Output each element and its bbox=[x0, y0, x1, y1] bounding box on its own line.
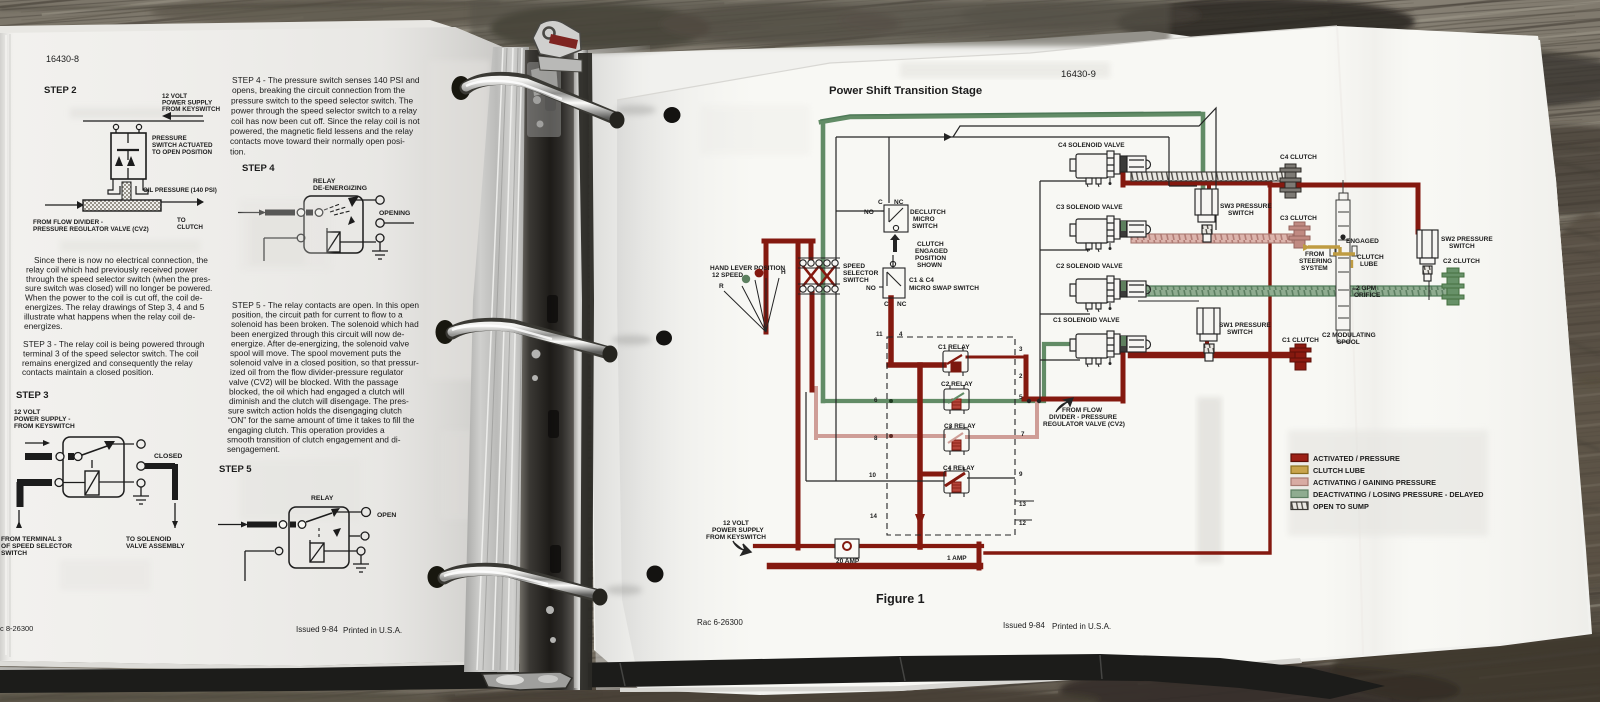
svg-text:1 AMP: 1 AMP bbox=[947, 555, 967, 562]
svg-text:STEERING: STEERING bbox=[1299, 258, 1332, 265]
svg-text:valve (CV2) will be blocked. W: valve (CV2) will be blocked. With the pa… bbox=[229, 377, 399, 387]
svg-text:2 GPM: 2 GPM bbox=[1356, 285, 1376, 292]
svg-text:DEACTIVATING / LOSING PRESSURE: DEACTIVATING / LOSING PRESSURE - DELAYED bbox=[1313, 490, 1484, 499]
svg-text:Issued 9-84: Issued 9-84 bbox=[1003, 621, 1045, 630]
svg-text:C3 SOLENOID VALVE: C3 SOLENOID VALVE bbox=[1056, 204, 1123, 211]
svg-text:FROM KEYSWITCH: FROM KEYSWITCH bbox=[706, 534, 766, 541]
svg-text:energize. After de-energizing,: energize. After de-energizing, the solen… bbox=[231, 338, 409, 348]
svg-text:4: 4 bbox=[899, 331, 903, 338]
svg-text:11: 11 bbox=[876, 331, 883, 338]
svg-text:FROM KEYSWITCH: FROM KEYSWITCH bbox=[14, 423, 75, 430]
svg-text:ENGAGED: ENGAGED bbox=[1346, 238, 1379, 245]
svg-text:20 AMP: 20 AMP bbox=[836, 558, 860, 565]
svg-text:5: 5 bbox=[1019, 394, 1023, 401]
svg-text:RELAY: RELAY bbox=[311, 495, 334, 502]
svg-text:Printed in U.S.A.: Printed in U.S.A. bbox=[1052, 622, 1111, 631]
svg-text:STEP 2: STEP 2 bbox=[44, 85, 77, 96]
svg-text:PRESSURE: PRESSURE bbox=[152, 135, 187, 142]
svg-text:FROM TERMINAL 3: FROM TERMINAL 3 bbox=[1, 536, 62, 543]
svg-text:position, the circuit path for: position, the circuit path for current t… bbox=[232, 310, 403, 320]
svg-text:SW1 PRESSURE: SW1 PRESSURE bbox=[1219, 322, 1271, 329]
svg-text:SHOWN: SHOWN bbox=[917, 262, 942, 269]
svg-text:SWITCH: SWITCH bbox=[1227, 329, 1253, 336]
svg-text:CLUTCH LUBE: CLUTCH LUBE bbox=[1313, 466, 1365, 475]
svg-text:CLUTCH: CLUTCH bbox=[917, 241, 944, 248]
svg-text:PRESSURE REGULATOR VALVE (CV2): PRESSURE REGULATOR VALVE (CV2) bbox=[33, 226, 149, 233]
svg-text:R: R bbox=[719, 283, 724, 290]
svg-text:3: 3 bbox=[1019, 346, 1023, 353]
svg-text:C: C bbox=[884, 301, 889, 308]
svg-text:engaging clutch. This operatio: engaging clutch. This operation provides… bbox=[228, 425, 385, 435]
svg-text:OPENING: OPENING bbox=[379, 210, 410, 217]
svg-text:been energized through this ci: been energized through this circuit will… bbox=[231, 329, 405, 339]
svg-text:pressure switch to the speed s: pressure switch to the speed selector sw… bbox=[231, 95, 413, 105]
svg-text:TO SOLENOID: TO SOLENOID bbox=[126, 536, 172, 543]
svg-text:12: 12 bbox=[1019, 520, 1026, 527]
svg-text:Issued 9-84: Issued 9-84 bbox=[296, 625, 338, 634]
svg-text:POWER SUPPLY: POWER SUPPLY bbox=[712, 527, 764, 534]
svg-text:STEP 5 - The relay contacts ar: STEP 5 - The relay contacts are open. In… bbox=[232, 300, 419, 310]
svg-text:C1 RELAY: C1 RELAY bbox=[938, 344, 970, 351]
svg-text:H: H bbox=[781, 269, 786, 276]
svg-text:C1 CLUTCH: C1 CLUTCH bbox=[1282, 337, 1319, 344]
svg-text:C4 CLUTCH: C4 CLUTCH bbox=[1280, 154, 1317, 161]
svg-text:12 VOLT: 12 VOLT bbox=[14, 409, 40, 416]
svg-text:C: C bbox=[878, 199, 883, 206]
svg-text:coil has now been cut off. Sin: coil has now been cut off. Since the rel… bbox=[231, 116, 420, 126]
svg-text:C1 & C4: C1 & C4 bbox=[909, 277, 934, 284]
svg-text:ENGAGED: ENGAGED bbox=[915, 248, 948, 255]
svg-text:7: 7 bbox=[1021, 431, 1025, 438]
svg-text:c 8-26300: c 8-26300 bbox=[0, 624, 33, 633]
svg-text:sengagement.: sengagement. bbox=[227, 444, 280, 454]
svg-text:C2 MODULATING: C2 MODULATING bbox=[1322, 332, 1376, 339]
svg-text:HAND LEVER POSITION: HAND LEVER POSITION bbox=[710, 265, 785, 272]
svg-text:C2 RELAY: C2 RELAY bbox=[941, 381, 973, 388]
svg-text:solenoid valve in a closed pos: solenoid valve in a closed position, so … bbox=[230, 358, 419, 368]
svg-text:FROM FLOW: FROM FLOW bbox=[1062, 407, 1103, 414]
svg-text:Power Shift Transition Stage: Power Shift Transition Stage bbox=[829, 85, 982, 97]
svg-text:ACTIVATING / GAINING PRESSURE: ACTIVATING / GAINING PRESSURE bbox=[1313, 478, 1436, 487]
svg-text:solenoid has been broken. The: solenoid has been broken. The solenoid w… bbox=[231, 319, 419, 329]
svg-text:16430-9: 16430-9 bbox=[1061, 69, 1096, 80]
svg-text:power through the speed select: power through the speed selector switch … bbox=[231, 106, 418, 116]
svg-text:contacts maintain a closed pos: contacts maintain a closed position. bbox=[22, 367, 154, 377]
svg-text:CLUTCH: CLUTCH bbox=[177, 224, 203, 231]
svg-text:opens, breaking the circuit co: opens, breaking the circuit connection f… bbox=[232, 85, 405, 95]
svg-text:8: 8 bbox=[874, 435, 878, 442]
svg-text:12 SPEED: 12 SPEED bbox=[712, 272, 743, 279]
svg-text:SPEED: SPEED bbox=[843, 263, 865, 270]
svg-text:DECLUTCH: DECLUTCH bbox=[910, 209, 946, 216]
svg-text:contacts move toward their nor: contacts move toward their normally open… bbox=[230, 136, 405, 146]
svg-text:SWITCH: SWITCH bbox=[1, 550, 27, 557]
svg-text:DIVIDER - PRESSURE: DIVIDER - PRESSURE bbox=[1049, 414, 1118, 421]
svg-text:CLOSED: CLOSED bbox=[154, 453, 182, 460]
svg-text:SWITCH: SWITCH bbox=[843, 277, 869, 284]
svg-text:REGULATOR VALVE (CV2): REGULATOR VALVE (CV2) bbox=[1043, 421, 1125, 428]
svg-text:Printed in U.S.A.: Printed in U.S.A. bbox=[343, 626, 402, 635]
svg-text:SW2 PRESSURE: SW2 PRESSURE bbox=[1441, 236, 1493, 243]
svg-text:OPEN TO SUMP: OPEN TO SUMP bbox=[1313, 502, 1369, 511]
svg-text:2: 2 bbox=[1019, 373, 1023, 380]
svg-text:C4 SOLENOID VALVE: C4 SOLENOID VALVE bbox=[1058, 142, 1125, 149]
svg-text:blocked, the oil which had eng: blocked, the oil which had engaged a clu… bbox=[229, 386, 404, 396]
svg-text:POSITION: POSITION bbox=[915, 255, 946, 262]
svg-text:DE-ENERGIZING: DE-ENERGIZING bbox=[313, 185, 367, 192]
svg-text:SWITCH: SWITCH bbox=[1449, 243, 1475, 250]
svg-text:ACTIVATED / PRESSURE: ACTIVATED / PRESSURE bbox=[1313, 454, 1400, 463]
svg-text:6: 6 bbox=[874, 397, 878, 404]
svg-text:16430-8: 16430-8 bbox=[46, 54, 79, 64]
svg-text:13: 13 bbox=[1019, 501, 1026, 508]
svg-text:SWITCH: SWITCH bbox=[1228, 210, 1254, 217]
svg-text:C2 SOLENOID VALVE: C2 SOLENOID VALVE bbox=[1056, 263, 1123, 270]
svg-text:SPOOL: SPOOL bbox=[1337, 339, 1360, 346]
svg-text:smooth transition of clutch en: smooth transition of clutch engagement a… bbox=[227, 434, 401, 444]
svg-text:sure switch action holds the d: sure switch action holds the disengaging… bbox=[228, 406, 402, 416]
svg-text:STEP 5: STEP 5 bbox=[219, 464, 252, 475]
svg-text:SWITCH ACTUATED: SWITCH ACTUATED bbox=[152, 142, 213, 149]
svg-text:SWITCH: SWITCH bbox=[912, 223, 938, 230]
svg-text:9: 9 bbox=[1019, 471, 1023, 478]
svg-text:10: 10 bbox=[869, 472, 876, 479]
svg-text:OPEN: OPEN bbox=[377, 512, 396, 519]
svg-text:Figure 1: Figure 1 bbox=[876, 592, 925, 606]
svg-text:C1 SOLENOID VALVE: C1 SOLENOID VALVE bbox=[1053, 317, 1120, 324]
svg-text:TO OPEN POSITION: TO OPEN POSITION bbox=[152, 149, 213, 156]
svg-text:STEP 4: STEP 4 bbox=[242, 163, 275, 174]
svg-text:NO: NO bbox=[866, 285, 876, 292]
svg-text:Rac 6-26300: Rac 6-26300 bbox=[697, 618, 743, 627]
svg-text:NC: NC bbox=[894, 199, 904, 206]
svg-text:POWER SUPPLY -: POWER SUPPLY - bbox=[14, 416, 70, 423]
svg-text:LUBE: LUBE bbox=[1360, 261, 1378, 268]
svg-text:12 VOLT: 12 VOLT bbox=[723, 520, 749, 527]
svg-text:ORIFICE: ORIFICE bbox=[1354, 292, 1381, 299]
svg-text:OF SPEED SELECTOR: OF SPEED SELECTOR bbox=[1, 543, 72, 550]
svg-text:STEP 4 - The pressure switch s: STEP 4 - The pressure switch senses 140 … bbox=[232, 75, 420, 85]
svg-text:NO: NO bbox=[864, 209, 874, 216]
svg-text:CLUTCH: CLUTCH bbox=[1357, 254, 1384, 261]
svg-text:“ON” for the same amount of ti: “ON” for the same amount of time it take… bbox=[228, 415, 415, 425]
svg-text:NC: NC bbox=[897, 301, 907, 308]
svg-text:C4 RELAY: C4 RELAY bbox=[943, 465, 975, 472]
svg-text:OIL PRESSURE (140 PSI): OIL PRESSURE (140 PSI) bbox=[143, 187, 217, 194]
svg-text:MICRO SWAP SWITCH: MICRO SWAP SWITCH bbox=[909, 285, 979, 292]
svg-text:FROM KEYSWITCH: FROM KEYSWITCH bbox=[162, 106, 221, 113]
svg-text:FROM: FROM bbox=[1305, 251, 1324, 258]
svg-text:SW3 PRESSURE: SW3 PRESSURE bbox=[1220, 203, 1272, 210]
svg-text:powered, the magnetic field le: powered, the magnetic field lessens and … bbox=[230, 126, 414, 136]
svg-text:tion.: tion. bbox=[230, 146, 246, 156]
svg-text:ized oil from the flow divider: ized oil from the flow divider-pressure … bbox=[230, 367, 404, 377]
svg-text:energizes.: energizes. bbox=[24, 321, 63, 331]
svg-text:VALVE ASSEMBLY: VALVE ASSEMBLY bbox=[126, 543, 185, 550]
svg-text:TO: TO bbox=[177, 217, 186, 224]
svg-text:diminish and the clutch will d: diminish and the clutch will disengage. … bbox=[229, 396, 409, 406]
svg-text:RELAY: RELAY bbox=[313, 178, 336, 185]
svg-text:14: 14 bbox=[870, 513, 877, 520]
svg-text:C3 CLUTCH: C3 CLUTCH bbox=[1280, 215, 1317, 222]
svg-text:SYSTEM: SYSTEM bbox=[1301, 265, 1328, 272]
svg-text:C3 RELAY: C3 RELAY bbox=[944, 423, 976, 430]
svg-text:spool will move. The spool mov: spool will move. The spool movement puts… bbox=[230, 348, 401, 358]
svg-text:FROM FLOW DIVIDER -: FROM FLOW DIVIDER - bbox=[33, 219, 103, 226]
svg-text:C2 CLUTCH: C2 CLUTCH bbox=[1443, 258, 1480, 265]
svg-text:MICRO: MICRO bbox=[913, 216, 935, 223]
svg-text:STEP 3: STEP 3 bbox=[16, 390, 49, 401]
svg-text:SELECTOR: SELECTOR bbox=[843, 270, 879, 277]
